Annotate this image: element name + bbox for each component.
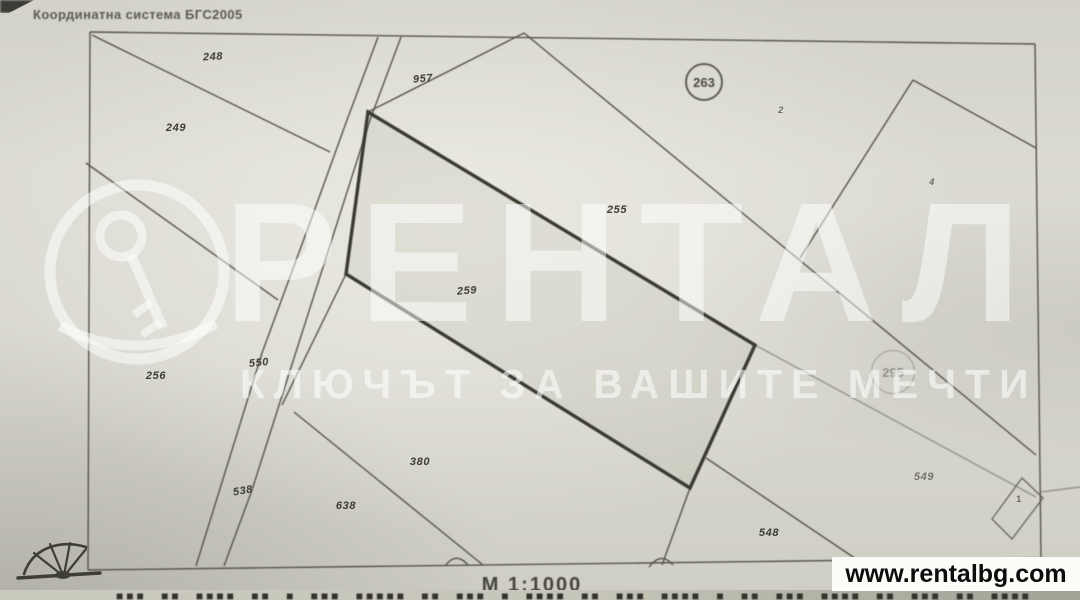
parcel-label-548: 548	[759, 527, 779, 539]
coordinate-system-label: Координатна система БГС2005	[33, 7, 243, 22]
parcel-label-549: 549	[914, 471, 934, 483]
watermark-brand: РЕНТАЛ	[224, 178, 1043, 348]
parcel-label-638: 638	[336, 500, 356, 512]
circled-parcel-263: 263	[685, 63, 723, 101]
parcel-label-248: 248	[203, 50, 224, 63]
cropped-caption-strip: ■■■ ■■ ■■■■ ■■ ■ ■■■ ■■■■■ ■■ ■■■ ■ ■■■■…	[0, 590, 1080, 600]
scanned-cadastral-map-photo: Координатна система БГС2005 248 249 957 …	[0, 0, 1080, 600]
parcel-label-249: 249	[166, 122, 186, 134]
website-badge: www.rentalbg.com	[832, 557, 1080, 591]
surveyor-sketch-icon	[6, 533, 106, 595]
watermark-tagline: КЛЮЧЪТ ЗА ВАШИТЕ МЕЧТИ	[240, 364, 1038, 405]
parcel-label-2: 2	[778, 105, 784, 115]
building-label-1: 1	[1016, 494, 1022, 504]
parcel-label-380: 380	[410, 456, 430, 468]
illegible-caption-text: ■■■ ■■ ■■■■ ■■ ■ ■■■ ■■■■■ ■■ ■■■ ■ ■■■■…	[0, 590, 1080, 600]
key-in-circle-icon	[38, 176, 243, 381]
parcel-label-957: 957	[412, 72, 433, 86]
circled-parcel-263-number: 263	[693, 75, 715, 90]
